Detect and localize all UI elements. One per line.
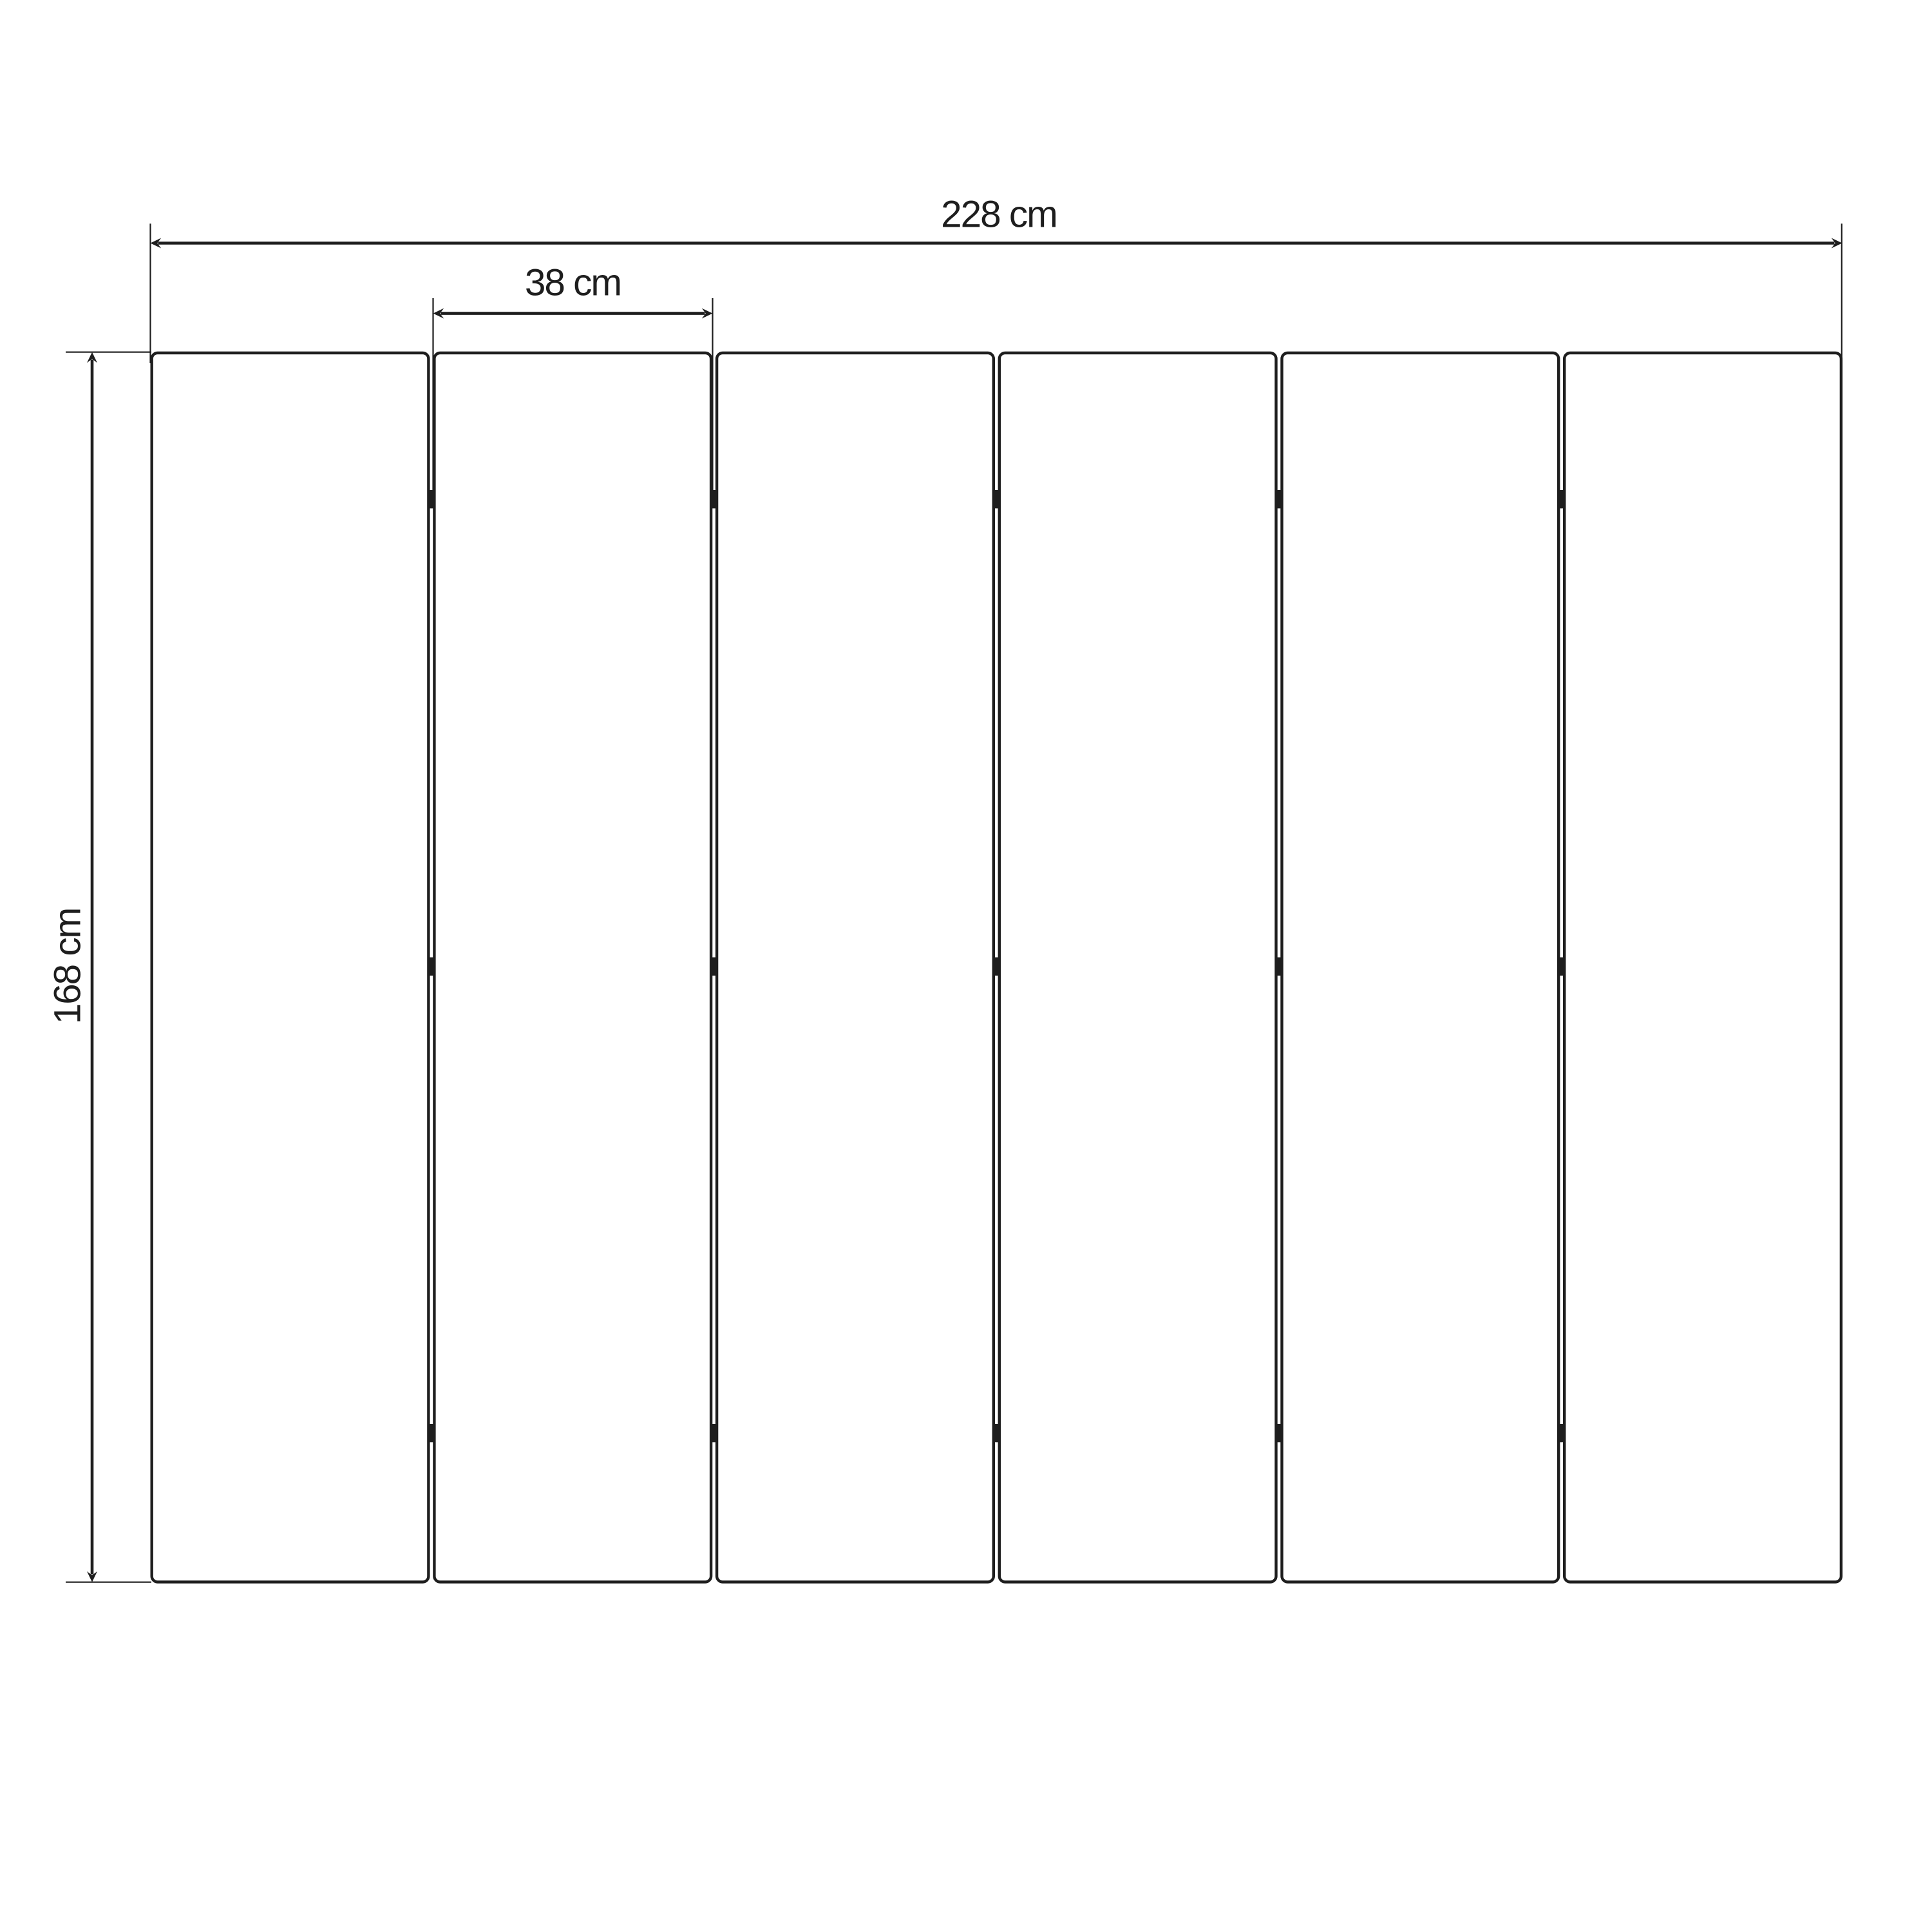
svg-text:228 cm: 228 cm bbox=[941, 194, 1057, 236]
svg-text:168 cm: 168 cm bbox=[47, 909, 89, 1025]
svg-text:38 cm: 38 cm bbox=[525, 262, 621, 304]
